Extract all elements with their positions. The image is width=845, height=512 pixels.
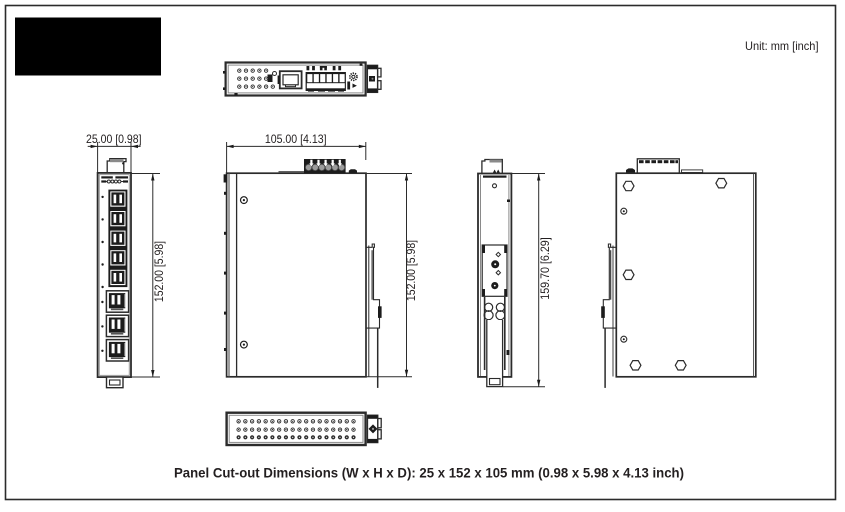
svg-text:Unit: mm [inch]: Unit: mm [inch] (745, 39, 819, 53)
svg-text:Panel Cut-out Dimensions (W x: Panel Cut-out Dimensions (W x H x D): 25… (174, 466, 684, 481)
svg-text:25.00 [0.98]: 25.00 [0.98] (86, 133, 142, 146)
svg-text:152.00 [5.98]: 152.00 [5.98] (405, 240, 418, 301)
svg-text:105.00 [4.13]: 105.00 [4.13] (265, 133, 327, 146)
svg-text:152.00 [5.98]: 152.00 [5.98] (153, 241, 166, 302)
svg-text:159.70 [6.29]: 159.70 [6.29] (539, 237, 552, 300)
